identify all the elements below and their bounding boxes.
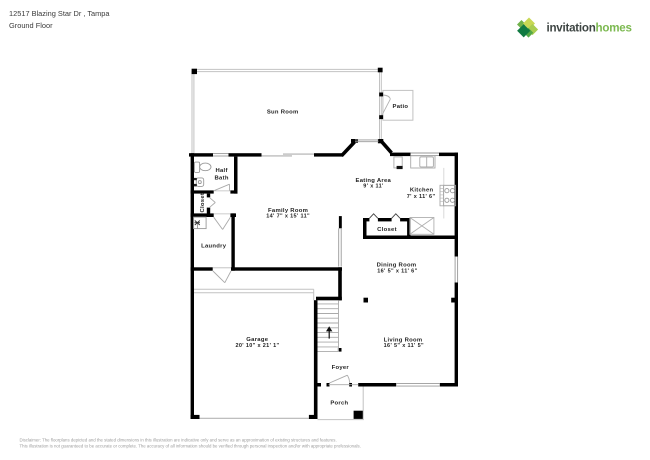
svg-text:Porch: Porch — [330, 401, 348, 407]
svg-text:14' 7" x 15' 11": 14' 7" x 15' 11" — [266, 214, 310, 220]
svg-text:Bath: Bath — [214, 175, 228, 181]
svg-text:7' x 11' 6": 7' x 11' 6" — [407, 194, 436, 200]
svg-text:16' 5" x 11' 6": 16' 5" x 11' 6" — [377, 268, 417, 274]
svg-text:9' x 11': 9' x 11' — [363, 183, 384, 189]
svg-text:Laundry: Laundry — [201, 244, 227, 250]
svg-text:Kitchen: Kitchen — [410, 188, 434, 194]
svg-text:Patio: Patio — [392, 104, 408, 110]
svg-text:Half: Half — [215, 168, 227, 174]
svg-text:16' 5" x 11' 5": 16' 5" x 11' 5" — [384, 343, 424, 349]
svg-text:Closet: Closet — [377, 227, 397, 233]
svg-text:Garage: Garage — [246, 337, 268, 343]
svg-text:Ground Floor: Ground Floor — [9, 21, 53, 30]
svg-text:This illustration is not guara: This illustration is not guaranteed to b… — [20, 444, 361, 449]
svg-text:Closet: Closet — [200, 193, 206, 213]
svg-text:Foyer: Foyer — [332, 365, 350, 371]
svg-text:12517 Blazing Star Dr , Tampa: 12517 Blazing Star Dr , Tampa — [9, 9, 110, 18]
svg-text:Sun Room: Sun Room — [267, 109, 299, 115]
svg-text:Disclaimer: The floorplans dep: Disclaimer: The floorplans depicted and … — [20, 437, 337, 442]
svg-text:20' 10" x 21' 1": 20' 10" x 21' 1" — [235, 343, 279, 349]
svg-text:invitationhomes: invitationhomes — [547, 22, 632, 35]
